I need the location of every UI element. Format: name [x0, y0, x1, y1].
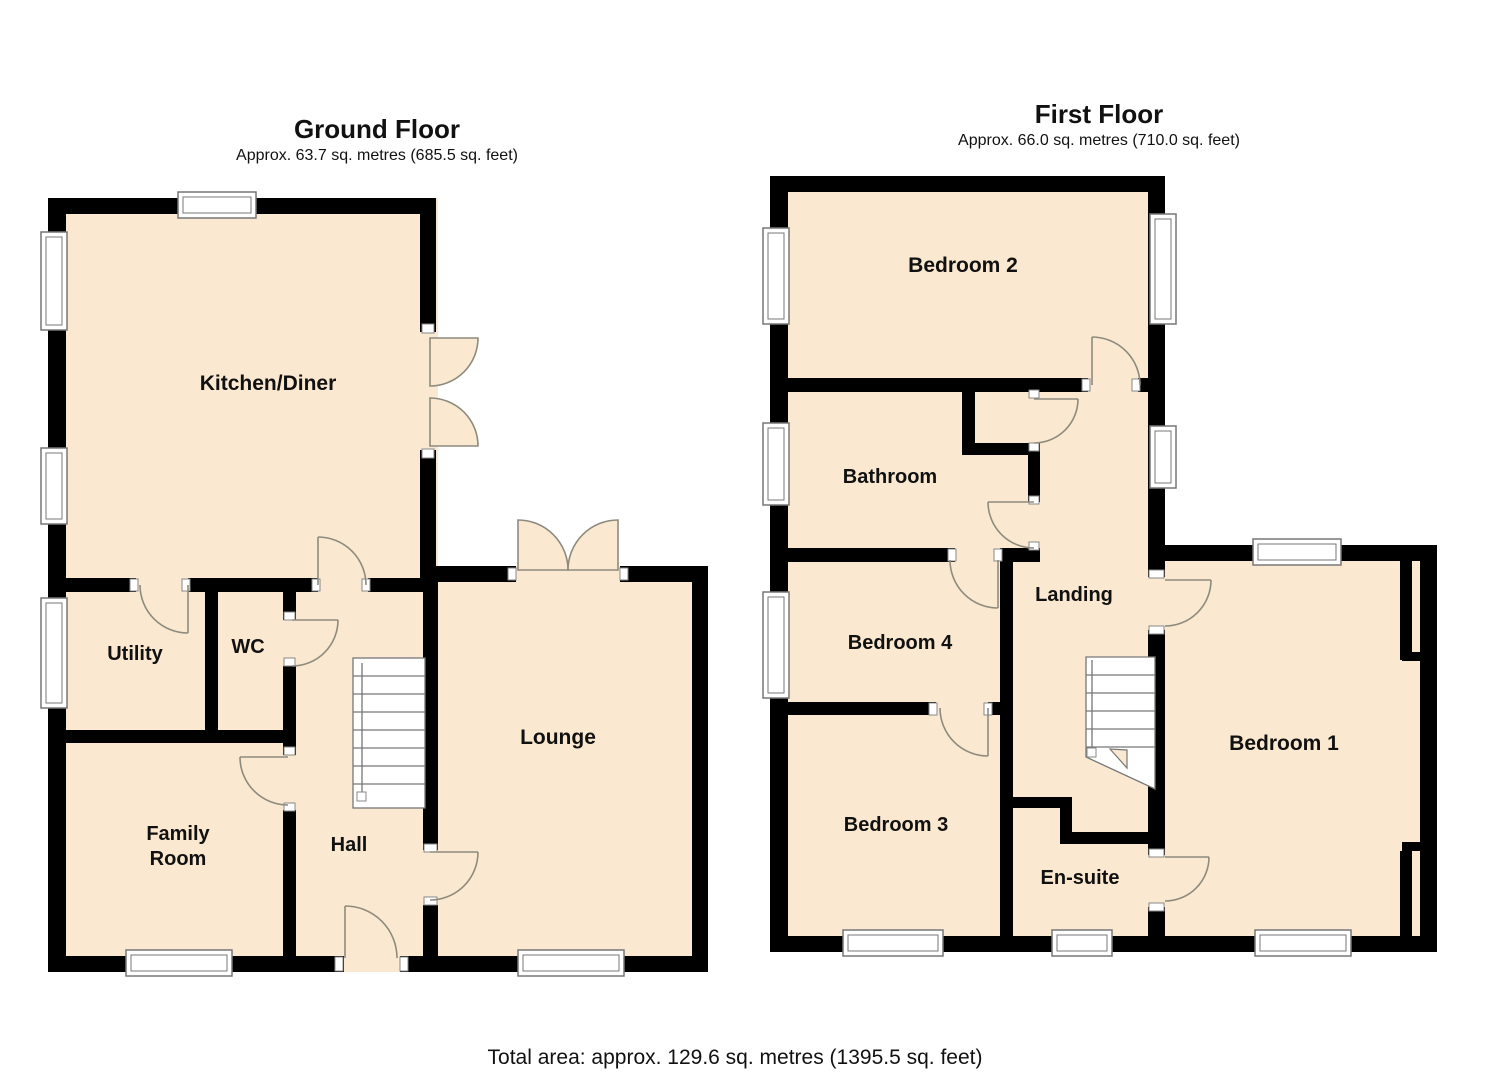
- lounge-label: Lounge: [520, 726, 596, 749]
- window: [763, 423, 789, 505]
- total-area-text: Total area: approx. 129.6 sq. metres (13…: [488, 1046, 983, 1070]
- window: [518, 950, 624, 976]
- hall-label: Hall: [331, 834, 368, 856]
- window: [126, 950, 232, 976]
- door-leaf-arc: [518, 520, 568, 570]
- family-room-label-line2: Room: [150, 848, 207, 870]
- wc-label: WC: [231, 636, 264, 658]
- ground-floor-stairs: [353, 658, 425, 808]
- ensuite-label: En-suite: [1041, 867, 1120, 889]
- window: [763, 228, 789, 324]
- lounge-base: [423, 566, 708, 972]
- landing-label: Landing: [1035, 584, 1113, 606]
- window: [763, 592, 789, 698]
- kitchen-diner-label: Kitchen/Diner: [200, 372, 337, 395]
- ground-floor-plan: Kitchen/Diner Utility WC Family Room Hal…: [41, 192, 708, 976]
- window: [41, 232, 67, 330]
- window: [41, 448, 67, 524]
- door-leaf-arc: [430, 338, 478, 386]
- first-floor-plan: Bedroom 2 Bathroom Landing Bedroom 4 Bed…: [763, 176, 1437, 956]
- bedroom4-label: Bedroom 4: [848, 632, 953, 654]
- bedroom3-label: Bedroom 3: [844, 814, 948, 836]
- window: [1253, 539, 1341, 565]
- door-leaf-arc: [430, 398, 478, 446]
- bedroom1-label: Bedroom 1: [1229, 732, 1339, 755]
- bathroom-label: Bathroom: [843, 466, 937, 488]
- window: [41, 598, 67, 708]
- lounge-double-door: [518, 520, 618, 570]
- floorplan-drawing: Kitchen/Diner Utility WC Family Room Hal…: [0, 0, 1485, 1080]
- bedroom2-label: Bedroom 2: [908, 254, 1018, 277]
- utility-label: Utility: [107, 643, 163, 665]
- window: [1052, 930, 1112, 956]
- window: [843, 930, 943, 956]
- floorplan-page: Ground Floor Approx. 63.7 sq. metres (68…: [0, 0, 1485, 1080]
- family-room-label-line1: Family: [146, 823, 210, 845]
- window: [1150, 214, 1176, 324]
- door-leaf-arc: [568, 520, 618, 570]
- window: [178, 192, 256, 218]
- window: [1255, 930, 1351, 956]
- window: [1150, 426, 1176, 488]
